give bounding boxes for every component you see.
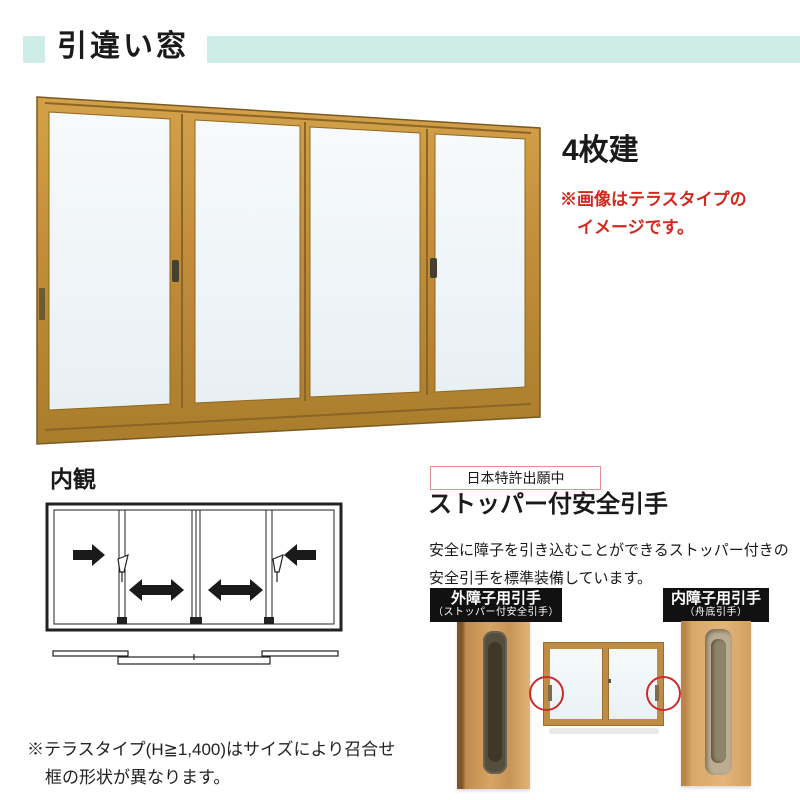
footer-note-line-2: 框の形状が異なります。: [27, 764, 395, 792]
panel-count-label: 4枚建: [562, 133, 639, 169]
note-line-2: イメージです。: [560, 214, 747, 242]
outer-handle-subtitle: （ストッパー付安全引手）: [430, 607, 562, 619]
page-title: 引違い窓: [57, 30, 189, 64]
outer-handle-photo: [457, 622, 530, 789]
footer-note-line-1: ※テラスタイプ(H≧1,400)はサイズにより召合せ: [27, 736, 395, 764]
title-accent-bar: [207, 36, 800, 63]
outer-handle-title: 外障子用引手: [430, 590, 562, 607]
feature-title: ストッパー付安全引手: [428, 490, 668, 520]
note-line-1: ※画像はテラスタイプの: [560, 186, 747, 214]
product-image-note: ※画像はテラスタイプの イメージです。: [560, 186, 747, 242]
highlight-circle-right: [646, 676, 681, 711]
feature-description-line-1: 安全に障子を引き込むことができるストッパー付きの: [429, 537, 789, 565]
inner-handle-subtitle: （舟底引手）: [663, 607, 769, 619]
product-sheet: 引違い窓: [0, 0, 800, 800]
inner-handle-title: 内障子用引手: [663, 590, 769, 607]
inner-handle-photo: [681, 621, 751, 786]
patent-pending-text: 日本特許出願中: [467, 468, 565, 488]
sill-plan-view: [53, 651, 338, 664]
safety-pull-handle-recess: [488, 642, 502, 762]
mini-window-glass: [550, 649, 657, 719]
outer-handle-label: 外障子用引手 （ストッパー付安全引手）: [430, 588, 562, 622]
diagram-outer-frame: [47, 504, 341, 630]
window-glass-panes: [49, 112, 525, 410]
boat-bottom-pull-handle-recess: [711, 639, 726, 763]
title-accent-square: [23, 36, 45, 63]
mini-window-center-stile: [602, 648, 609, 720]
highlight-circle-left: [529, 676, 564, 711]
mini-window-shadow: [549, 728, 659, 734]
interior-view-label: 内観: [50, 464, 96, 494]
crescent-lock-icon: [430, 258, 437, 278]
footer-note: ※テラスタイプ(H≧1,400)はサイズにより召合せ 框の形状が異なります。: [27, 736, 395, 792]
mini-window-lock-dot: [608, 679, 611, 683]
patent-pending-badge: 日本特許出願中: [430, 466, 601, 490]
glass-pane-1: [49, 112, 170, 410]
glass-pane-3: [310, 127, 420, 397]
jamb-pull-recess: [39, 288, 45, 320]
product-image-4panel-window: [35, 92, 545, 452]
inner-handle-label: 内障子用引手 （舟底引手）: [663, 588, 769, 622]
feature-description: 安全に障子を引き込むことができるストッパー付きの 安全引手を標準装備しています。: [429, 537, 789, 593]
glass-pane-2: [195, 120, 300, 403]
interior-view-diagram: [45, 500, 345, 670]
glass-pane-4: [435, 134, 525, 392]
crescent-lock-icon: [172, 260, 179, 282]
